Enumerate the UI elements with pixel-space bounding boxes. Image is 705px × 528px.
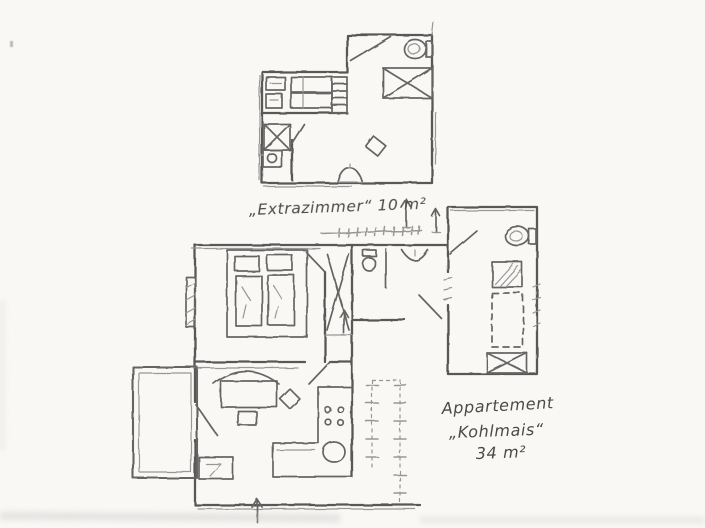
scanned-floorplan-sheet: „Extrazimmer“ 10 m² Appartement „Kohlmai… — [0, 0, 705, 528]
floorplan-sketch: „Extrazimmer“ 10 m² Appartement „Kohlmai… — [0, 0, 705, 528]
paper-grain — [0, 0, 705, 528]
